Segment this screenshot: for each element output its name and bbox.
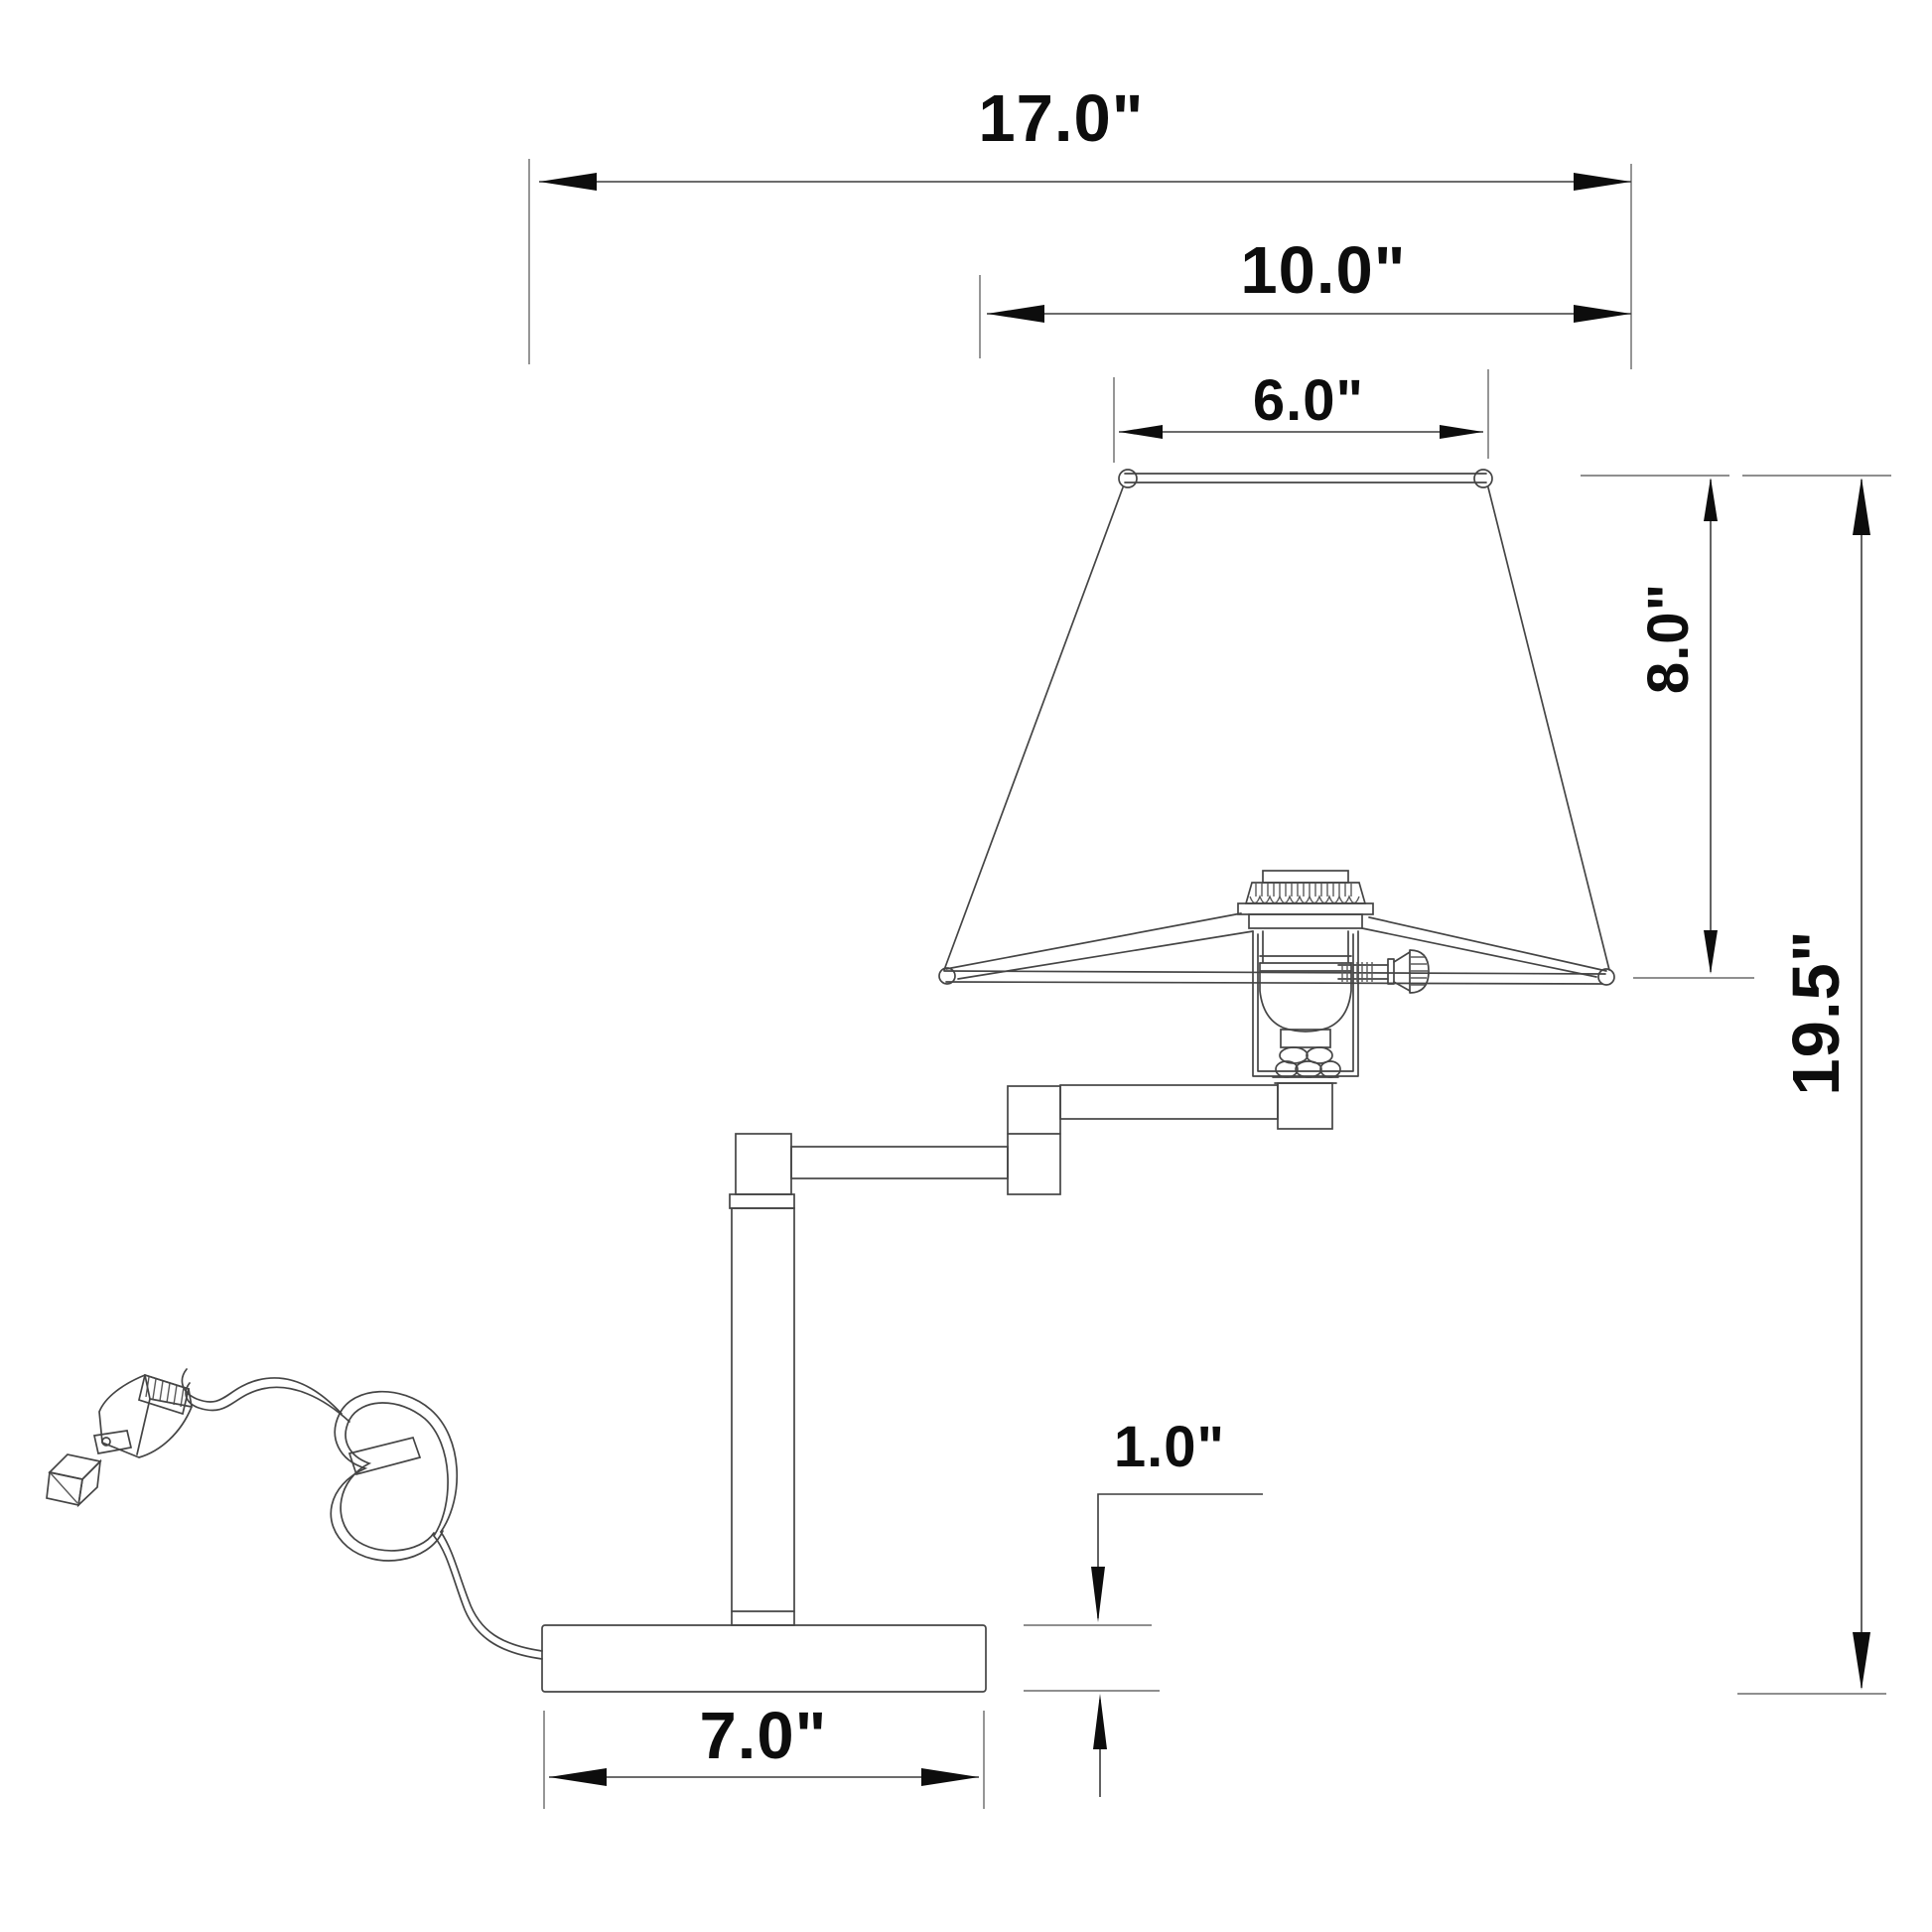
cord-tail-strand-1: [441, 1532, 542, 1651]
lamp-socket-assembly: [1238, 871, 1429, 1129]
shade-right-slope: [1488, 487, 1609, 970]
plug-ground-tab: [94, 1431, 131, 1453]
lower-arm-segment: [791, 1147, 1008, 1178]
arrowhead-top-19-5: [1853, 478, 1870, 535]
dimension-base-thickness-1: 1.0": [1024, 1415, 1263, 1797]
shade-top-left-ferrule: [1119, 470, 1137, 487]
fitter-ring-knurling: [1256, 884, 1351, 897]
switch-cone: [1394, 952, 1410, 991]
knurled-lock-nut: [1273, 1047, 1340, 1083]
socket-stem-block: [1278, 1083, 1332, 1129]
finial-top: [1263, 871, 1348, 883]
cord-coil-inner: [341, 1403, 448, 1551]
dimension-shade-span-17: 17.0": [529, 81, 1631, 369]
dimension-shade-bottom-10: 10.0": [980, 233, 1631, 358]
shade-top-right-ferrule: [1474, 470, 1492, 487]
safety-cap-top-face: [50, 1454, 100, 1479]
shade-bottom-rim-back-left: [946, 913, 1253, 979]
socket-flange-upper: [1238, 903, 1373, 914]
arrowhead-left-10: [987, 305, 1044, 323]
extension-lines-17: [529, 159, 1631, 369]
switch-collar: [1388, 959, 1394, 984]
dimension-label-17: 17.0": [978, 81, 1144, 156]
arrowhead-left-17: [539, 173, 597, 191]
cord-run-strand-1: [182, 1369, 342, 1414]
switch-shaft-threads: [1342, 962, 1372, 982]
drawing-page: 17.0" 10.0" 6.0" 8.0" 19.5": [0, 0, 1932, 1932]
arrowhead-bottom-8: [1704, 930, 1718, 974]
dimension-overall-height-19-5: 19.5": [1737, 476, 1891, 1694]
power-plug: [94, 1375, 192, 1457]
dimension-label-19-5: 19.5": [1779, 929, 1854, 1095]
socket-flange-lower: [1249, 914, 1362, 928]
arrowhead-right-7: [921, 1768, 979, 1786]
arrowhead-bottom-19-5: [1853, 1632, 1870, 1690]
shade-top-rim: [1125, 474, 1486, 483]
power-cord: [182, 1369, 542, 1659]
harp-bracket-frame: [1253, 931, 1358, 1076]
arrowhead-top-8: [1704, 478, 1718, 521]
shade-bottom-rim-front: [944, 971, 1605, 984]
lamp-technical-drawing: 17.0" 10.0" 6.0" 8.0" 19.5": [0, 0, 1932, 1932]
arrowhead-up-1: [1093, 1694, 1107, 1749]
dimension-label-1: 1.0": [1114, 1415, 1225, 1479]
extension-lines-1: [1024, 1625, 1160, 1691]
cord-tail-strand-2: [434, 1536, 542, 1659]
dimension-base-width-7: 7.0": [544, 1699, 984, 1809]
extension-lines-8: [1581, 476, 1754, 978]
pole-collar: [730, 1194, 794, 1208]
arrowhead-left-6: [1119, 425, 1163, 439]
safety-cap-side-face: [78, 1461, 100, 1505]
shade-bottom-rim-back-right: [1362, 917, 1606, 977]
upper-arm-segment: [1060, 1085, 1278, 1119]
dimension-shade-height-8: 8.0": [1581, 476, 1754, 978]
arrowhead-right-10: [1574, 305, 1631, 323]
pole-column: [732, 1208, 794, 1625]
dimension-label-8: 8.0": [1636, 583, 1701, 694]
arrowhead-left-7: [549, 1768, 607, 1786]
pole-top-joint: [736, 1134, 791, 1194]
plug-safety-cap: [47, 1454, 100, 1505]
lamp-pole: [732, 1208, 794, 1625]
base-plate: [542, 1625, 986, 1692]
leader-line-1: [1098, 1494, 1263, 1618]
swing-arm: [730, 1085, 1278, 1208]
fitter-ring-scallops: [1250, 897, 1359, 903]
arrowhead-right-6: [1440, 425, 1483, 439]
dimension-shade-top-6: 6.0": [1114, 368, 1488, 463]
shade-left-slope: [944, 487, 1123, 970]
arrowhead-down-1: [1091, 1567, 1105, 1622]
dimension-label-10: 10.0": [1240, 233, 1406, 308]
lamp-shade: [939, 470, 1614, 985]
lamp-base: [542, 1625, 986, 1692]
elbow-joint: [1008, 1086, 1060, 1194]
switch-knob-ribs: [1411, 957, 1428, 985]
arrowhead-right-17: [1574, 173, 1631, 191]
dimension-label-7: 7.0": [700, 1699, 828, 1773]
dimension-label-6: 6.0": [1253, 368, 1364, 433]
